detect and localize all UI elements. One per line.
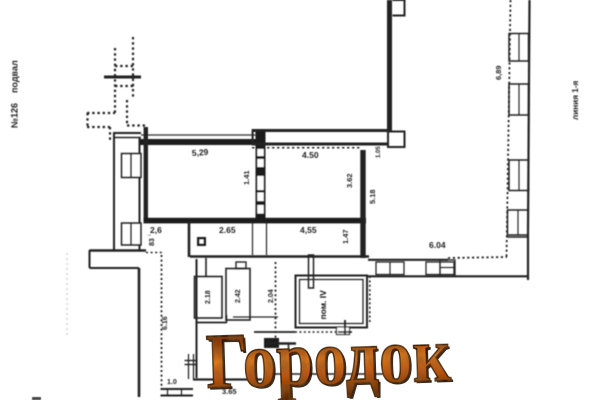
svg-text:№126: №126 — [10, 103, 20, 128]
svg-text:2.04: 2.04 — [268, 289, 275, 303]
svg-text:2.42: 2.42 — [235, 289, 242, 303]
svg-text:83: 83 — [149, 238, 156, 246]
svg-text:подвал: подвал — [10, 60, 20, 93]
svg-text:5.18: 5.18 — [368, 189, 377, 204]
svg-text:Городок: Городок — [205, 311, 452, 400]
svg-text:2.65: 2.65 — [219, 225, 236, 235]
svg-text:2.18: 2.18 — [205, 290, 212, 304]
svg-text:6.16: 6.16 — [162, 316, 169, 330]
svg-text:3.62: 3.62 — [345, 173, 354, 188]
svg-text:6.04: 6.04 — [429, 240, 446, 250]
svg-text:1.0: 1.0 — [167, 379, 177, 386]
svg-text:4,55: 4,55 — [300, 225, 317, 235]
svg-text:5,29: 5,29 — [191, 147, 208, 158]
svg-text:6,89: 6,89 — [494, 65, 503, 80]
svg-text:линия 1-я: линия 1-я — [571, 80, 580, 120]
svg-text:1.41: 1.41 — [242, 170, 251, 185]
svg-text:1.05: 1.05 — [376, 146, 382, 158]
svg-text:4.50: 4.50 — [302, 150, 319, 160]
svg-text:→: → — [146, 232, 152, 238]
svg-text:1.47: 1.47 — [341, 229, 350, 244]
